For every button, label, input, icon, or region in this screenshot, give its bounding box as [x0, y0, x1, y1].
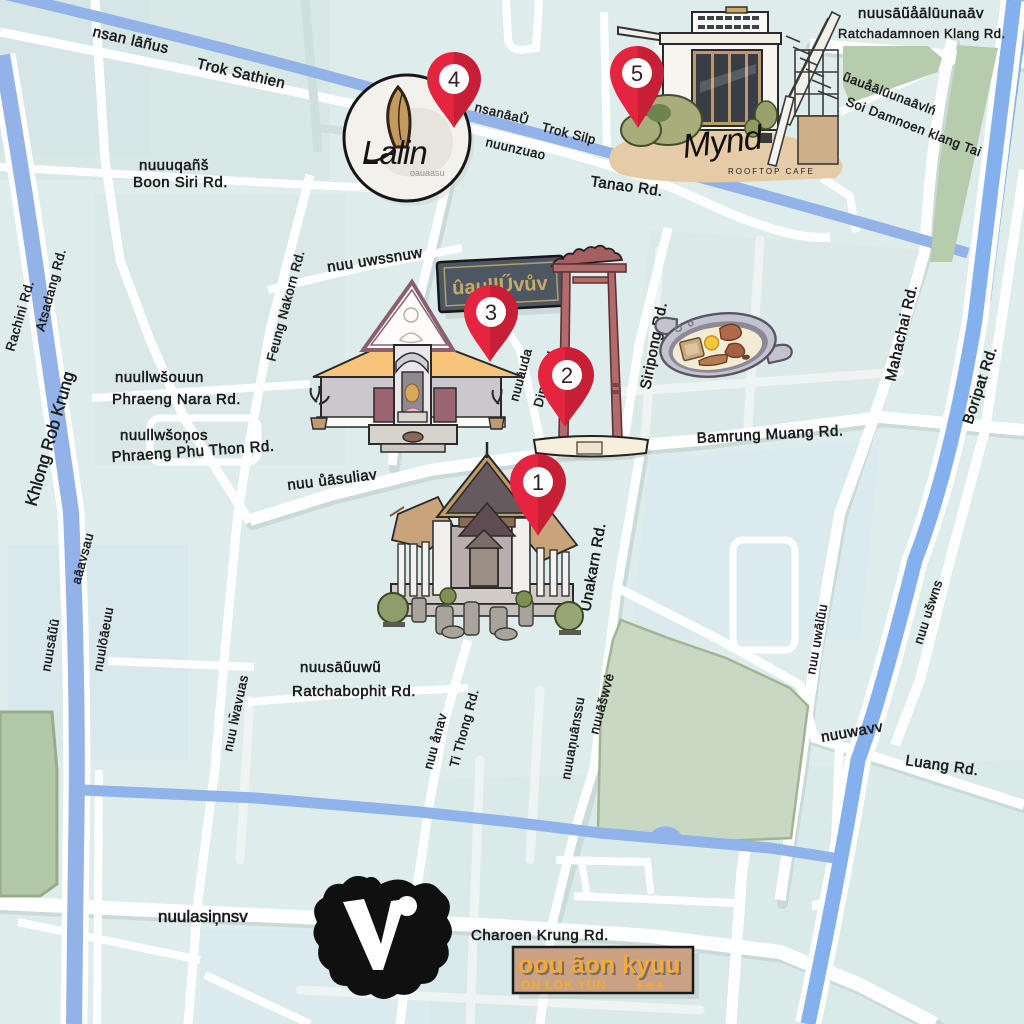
- svg-text:nuullwšoņos: nuullwšoņos: [120, 427, 208, 444]
- svg-text:3: 3: [485, 300, 497, 325]
- svg-text:1: 1: [532, 470, 544, 495]
- svg-text:Ratchabophit Rd.: Ratchabophit Rd.: [292, 683, 416, 700]
- svg-text:nuuuqañš: nuuuqañš: [139, 157, 209, 174]
- svg-text:oauaasu: oauaasu: [410, 168, 445, 178]
- svg-text:nuulasiņnsv: nuulasiņnsv: [158, 907, 248, 926]
- svg-text:4: 4: [448, 67, 460, 92]
- svg-text:nuusāũåālūunaāv: nuusāũåālūunaāv: [858, 5, 984, 22]
- svg-text:Boon Siri Rd.: Boon Siri Rd.: [133, 174, 228, 191]
- svg-text:oou ãon kyuu: oou ãon kyuu: [518, 951, 681, 979]
- svg-text:♣ ♣ ♣: ♣ ♣ ♣: [636, 980, 664, 992]
- svg-text:nuusāũuwũ: nuusāũuwũ: [300, 659, 381, 676]
- svg-text:Lalin: Lalin: [362, 134, 427, 171]
- svg-text:ROOFTOP CAFE: ROOFTOP CAFE: [728, 167, 815, 176]
- svg-text:Phraeng Nara Rd.: Phraeng Nara Rd.: [112, 391, 241, 408]
- svg-text:5: 5: [631, 61, 643, 86]
- svg-text:Charoen Krung Rd.: Charoen Krung Rd.: [471, 927, 609, 944]
- svg-text:ON LOK YUN: ON LOK YUN: [521, 978, 606, 992]
- svg-text:nuullwšouun: nuullwšouun: [115, 369, 204, 386]
- svg-text:2: 2: [561, 363, 573, 388]
- svg-text:Ratchadamnoen Klang Rd.: Ratchadamnoen Klang Rd.: [838, 26, 1006, 41]
